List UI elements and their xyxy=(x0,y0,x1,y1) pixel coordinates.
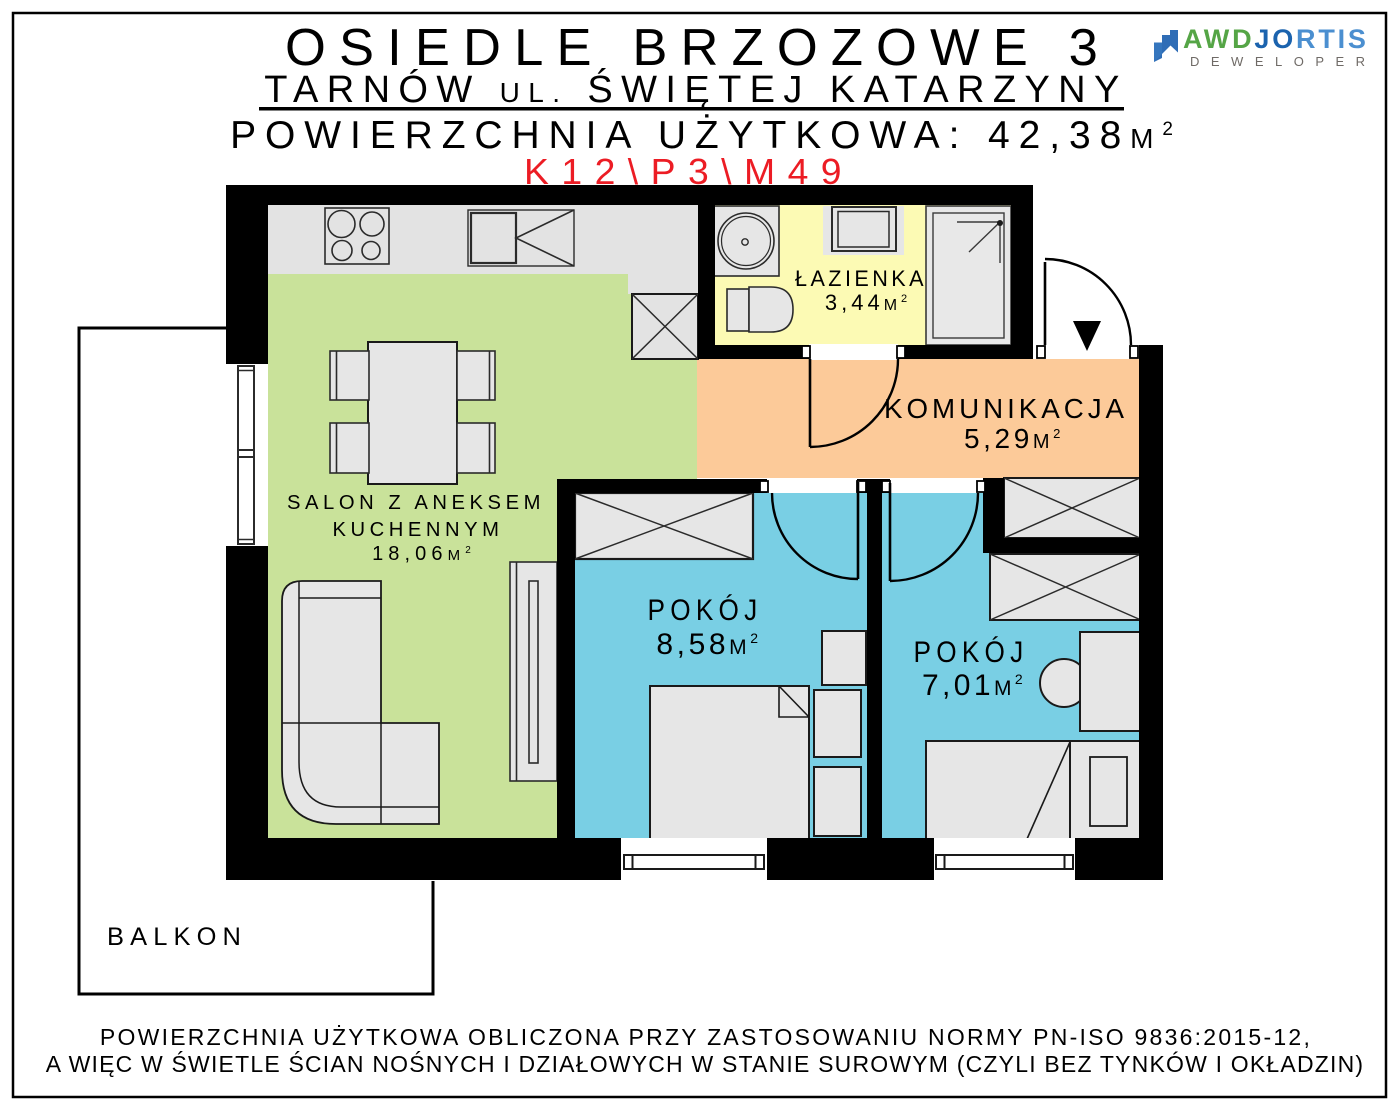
svg-text:A WIĘC W ŚWIETLE ŚCIAN NOŚNYCH: A WIĘC W ŚWIETLE ŚCIAN NOŚNYCH I DZIAŁOW… xyxy=(46,1050,1365,1077)
svg-text:POKÓJ: POKÓJ xyxy=(648,594,763,627)
svg-text:KUCHENNYM: KUCHENNYM xyxy=(333,519,504,541)
svg-text:18,06M2: 18,06M2 xyxy=(372,543,476,565)
svg-text:BALKON: BALKON xyxy=(107,923,247,951)
svg-text:SALON Z ANEKSEM: SALON Z ANEKSEM xyxy=(287,492,545,514)
svg-text:AWDJORTIS: AWDJORTIS xyxy=(1183,24,1369,54)
svg-text:KOMUNIKACJA: KOMUNIKACJA xyxy=(884,393,1128,424)
svg-text:POKÓJ: POKÓJ xyxy=(914,636,1029,669)
svg-text:POWIERZCHNIA UŻYTKOWA OBLICZON: POWIERZCHNIA UŻYTKOWA OBLICZONA PRZY ZAS… xyxy=(100,1024,1312,1050)
svg-text:ŁAZIENKA: ŁAZIENKA xyxy=(795,266,927,291)
svg-text:TARNÓW UL. ŚWIĘTEJ KATARZYNY: TARNÓW UL. ŚWIĘTEJ KATARZYNY xyxy=(264,66,1128,111)
svg-text:DEWELOPER: DEWELOPER xyxy=(1190,54,1377,69)
